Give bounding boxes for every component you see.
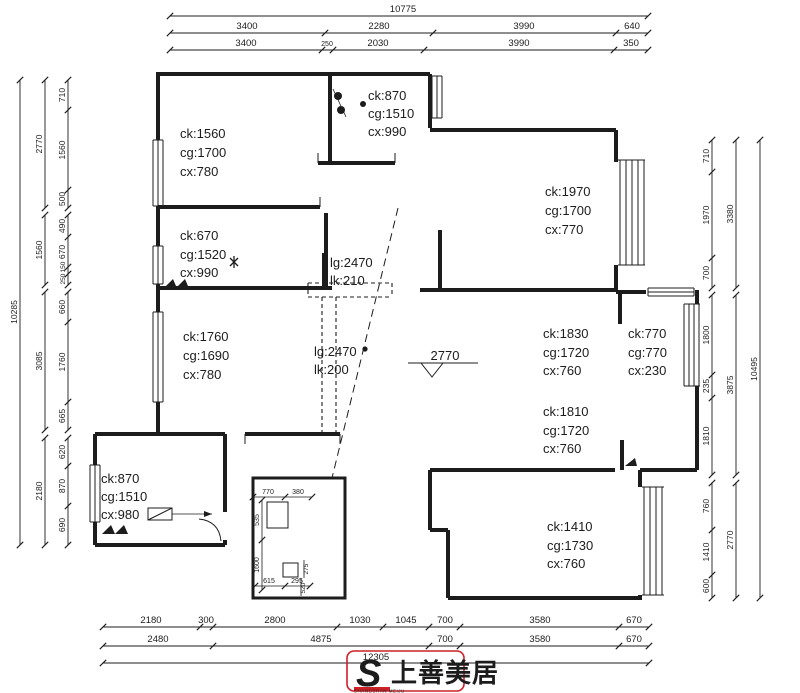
dim-label: 2770 xyxy=(34,134,44,153)
dim-label: 3580 xyxy=(529,634,550,645)
dim-label: 2280 xyxy=(368,21,389,32)
room-label: ck:1830 xyxy=(543,326,589,341)
dim-label: 2030 xyxy=(367,38,388,49)
floor-plan-page: 10775 3400 2280 3990 640 3400 250 2030 3… xyxy=(0,0,800,693)
logo-latin-text: SHANGSHAN MEIJU xyxy=(354,689,405,693)
room-label: cg:1510 xyxy=(101,489,147,504)
elevation-value: 2770 xyxy=(431,348,460,363)
room-label: cx:760 xyxy=(543,363,581,378)
dim-label: 770 xyxy=(262,489,274,496)
room-label: cg:1720 xyxy=(543,345,589,360)
dim-label: 1970 xyxy=(701,205,711,224)
dim-label: 500 xyxy=(57,192,67,206)
room-annotations: ck:1560 cg:1700 cx:780 ck:870 cg:1510 cx… xyxy=(101,88,667,571)
hatch-mark xyxy=(115,525,128,534)
dim-label: 3400 xyxy=(236,21,257,32)
dim-label: 3990 xyxy=(513,21,534,32)
dim-label: 870 xyxy=(57,479,67,493)
dim-label: 615 xyxy=(263,578,275,585)
room-label: cx:990 xyxy=(368,124,406,139)
fixture-dot xyxy=(360,101,366,107)
dim-chain-right: 710 1970 700 1800 235 1810 760 1410 600 … xyxy=(701,137,763,601)
dim-label: 535 xyxy=(254,514,261,526)
dim-label: 350 xyxy=(623,38,639,49)
detail-box: 770 380 535 1600 615 295 275 520 xyxy=(250,489,315,596)
dim-label: 2480 xyxy=(147,634,168,645)
dim-label: 660 xyxy=(57,300,67,314)
room-label: ck:1410 xyxy=(547,519,593,534)
room-label: cx:760 xyxy=(547,556,585,571)
detail-fixture xyxy=(267,502,288,528)
room-label: ck:770 xyxy=(628,326,666,341)
beam-label: lg:2470 xyxy=(314,344,357,359)
dim-label: 2180 xyxy=(140,615,161,626)
logo-name-text: 上善美居 xyxy=(391,658,499,688)
dim-label: 710 xyxy=(701,149,711,163)
room-label: ck:1970 xyxy=(545,184,591,199)
brand-logo: S SHANGSHAN MEIJU 上善美居 xyxy=(347,651,499,693)
dim-label: 490 xyxy=(57,219,67,233)
leader-line xyxy=(332,208,398,478)
room-label: cg:1520 xyxy=(180,247,226,262)
room-label: ck:1810 xyxy=(543,404,589,419)
room-label: ck:870 xyxy=(101,471,139,486)
room-label: ck:670 xyxy=(180,228,218,243)
dim-label: 670 xyxy=(626,634,642,645)
dim-label: 640 xyxy=(624,21,640,32)
dim-label: 275 xyxy=(303,563,310,574)
dim-label: 690 xyxy=(57,518,67,532)
dim-label: 235 xyxy=(701,379,711,393)
dim-label: 3875 xyxy=(725,375,735,394)
dim-label: 1600 xyxy=(254,557,261,573)
dim-label: 2770 xyxy=(725,530,735,549)
fixture-mark xyxy=(178,279,188,286)
dim-label: 520 xyxy=(300,582,307,593)
dim-label: 1800 xyxy=(701,325,711,344)
dim-label: 300 xyxy=(198,615,214,626)
dim-label: 700 xyxy=(701,266,711,280)
dim-label: 670 xyxy=(57,245,67,259)
room-label: cg:1690 xyxy=(183,348,229,363)
beam-label: lk:200 xyxy=(314,362,349,377)
room-label: cg:1700 xyxy=(180,145,226,160)
dim-label: 10495 xyxy=(749,357,759,381)
room-label: cg:1720 xyxy=(543,423,589,438)
dim-label: 600 xyxy=(701,579,711,593)
dim-label: 3580 xyxy=(529,615,550,626)
arrow-head xyxy=(204,511,212,517)
room-label: ck:1760 xyxy=(183,329,229,344)
detail-fixture xyxy=(283,563,298,577)
dim-label: 3400 xyxy=(235,38,256,49)
room-label: ck:1560 xyxy=(180,126,226,141)
beam-label: lg:2470 xyxy=(330,255,373,270)
room-label: cx:230 xyxy=(628,363,666,378)
room-label: cx:780 xyxy=(183,367,221,382)
room-label: cx:770 xyxy=(545,222,583,237)
dim-label: 1030 xyxy=(349,615,370,626)
dim-label: 3990 xyxy=(508,38,529,49)
fixture-mark xyxy=(625,458,637,466)
dim-label: 700 xyxy=(437,615,453,626)
dim-label: 1810 xyxy=(701,426,711,445)
dim-label: 380 xyxy=(292,489,304,496)
dim-label: 4875 xyxy=(310,634,331,645)
beam-dashed-lines xyxy=(308,208,398,478)
dim-label: 10775 xyxy=(390,4,416,15)
room-label: cx:980 xyxy=(101,507,139,522)
dim-chain-top: 10775 3400 2280 3990 640 3400 250 2030 3… xyxy=(167,4,651,53)
dim-label: 1410 xyxy=(701,542,711,561)
dim-label: 1760 xyxy=(57,352,67,371)
dim-label: 1560 xyxy=(34,240,44,259)
elevation-mark: 2770 xyxy=(408,348,478,377)
dim-label: 250 xyxy=(60,273,67,284)
hatch-mark xyxy=(102,525,115,534)
floor-plan-drawing: 10775 3400 2280 3990 640 3400 250 2030 3… xyxy=(0,0,800,693)
room-label: cx:780 xyxy=(180,164,218,179)
leader-dot xyxy=(362,346,367,351)
dim-label: 3085 xyxy=(34,351,44,370)
dim-label: 1045 xyxy=(395,615,416,626)
room-label: cx:990 xyxy=(180,265,218,280)
dim-chain-left: 10285 2770 1560 3085 2180 710 1560 500 4… xyxy=(9,77,71,548)
dim-label: 10285 xyxy=(9,300,19,324)
dim-label: 620 xyxy=(57,445,67,459)
dim-label: 670 xyxy=(626,615,642,626)
room-label: cx:760 xyxy=(543,441,581,456)
fixture-mark xyxy=(166,279,176,286)
door-arc xyxy=(199,519,221,541)
room-label: cg:1510 xyxy=(368,106,414,121)
room-label: cg:770 xyxy=(628,345,667,360)
dim-label: 665 xyxy=(57,409,67,423)
dim-label: 150 xyxy=(60,261,67,272)
room-label: cg:1730 xyxy=(547,538,593,553)
dim-label: 1560 xyxy=(57,140,67,159)
dim-label: 710 xyxy=(57,88,67,102)
dim-label: 2180 xyxy=(34,481,44,500)
dim-label: 760 xyxy=(701,499,711,513)
room-label: cg:1700 xyxy=(545,203,591,218)
dim-label: 2800 xyxy=(264,615,285,626)
beam-label: lk:210 xyxy=(330,273,365,288)
room-label: ck:870 xyxy=(368,88,406,103)
asterisk-symbol xyxy=(230,256,238,268)
dim-label: 250 xyxy=(321,41,333,48)
dim-label: 3380 xyxy=(725,204,735,223)
dim-label: 700 xyxy=(437,634,453,645)
